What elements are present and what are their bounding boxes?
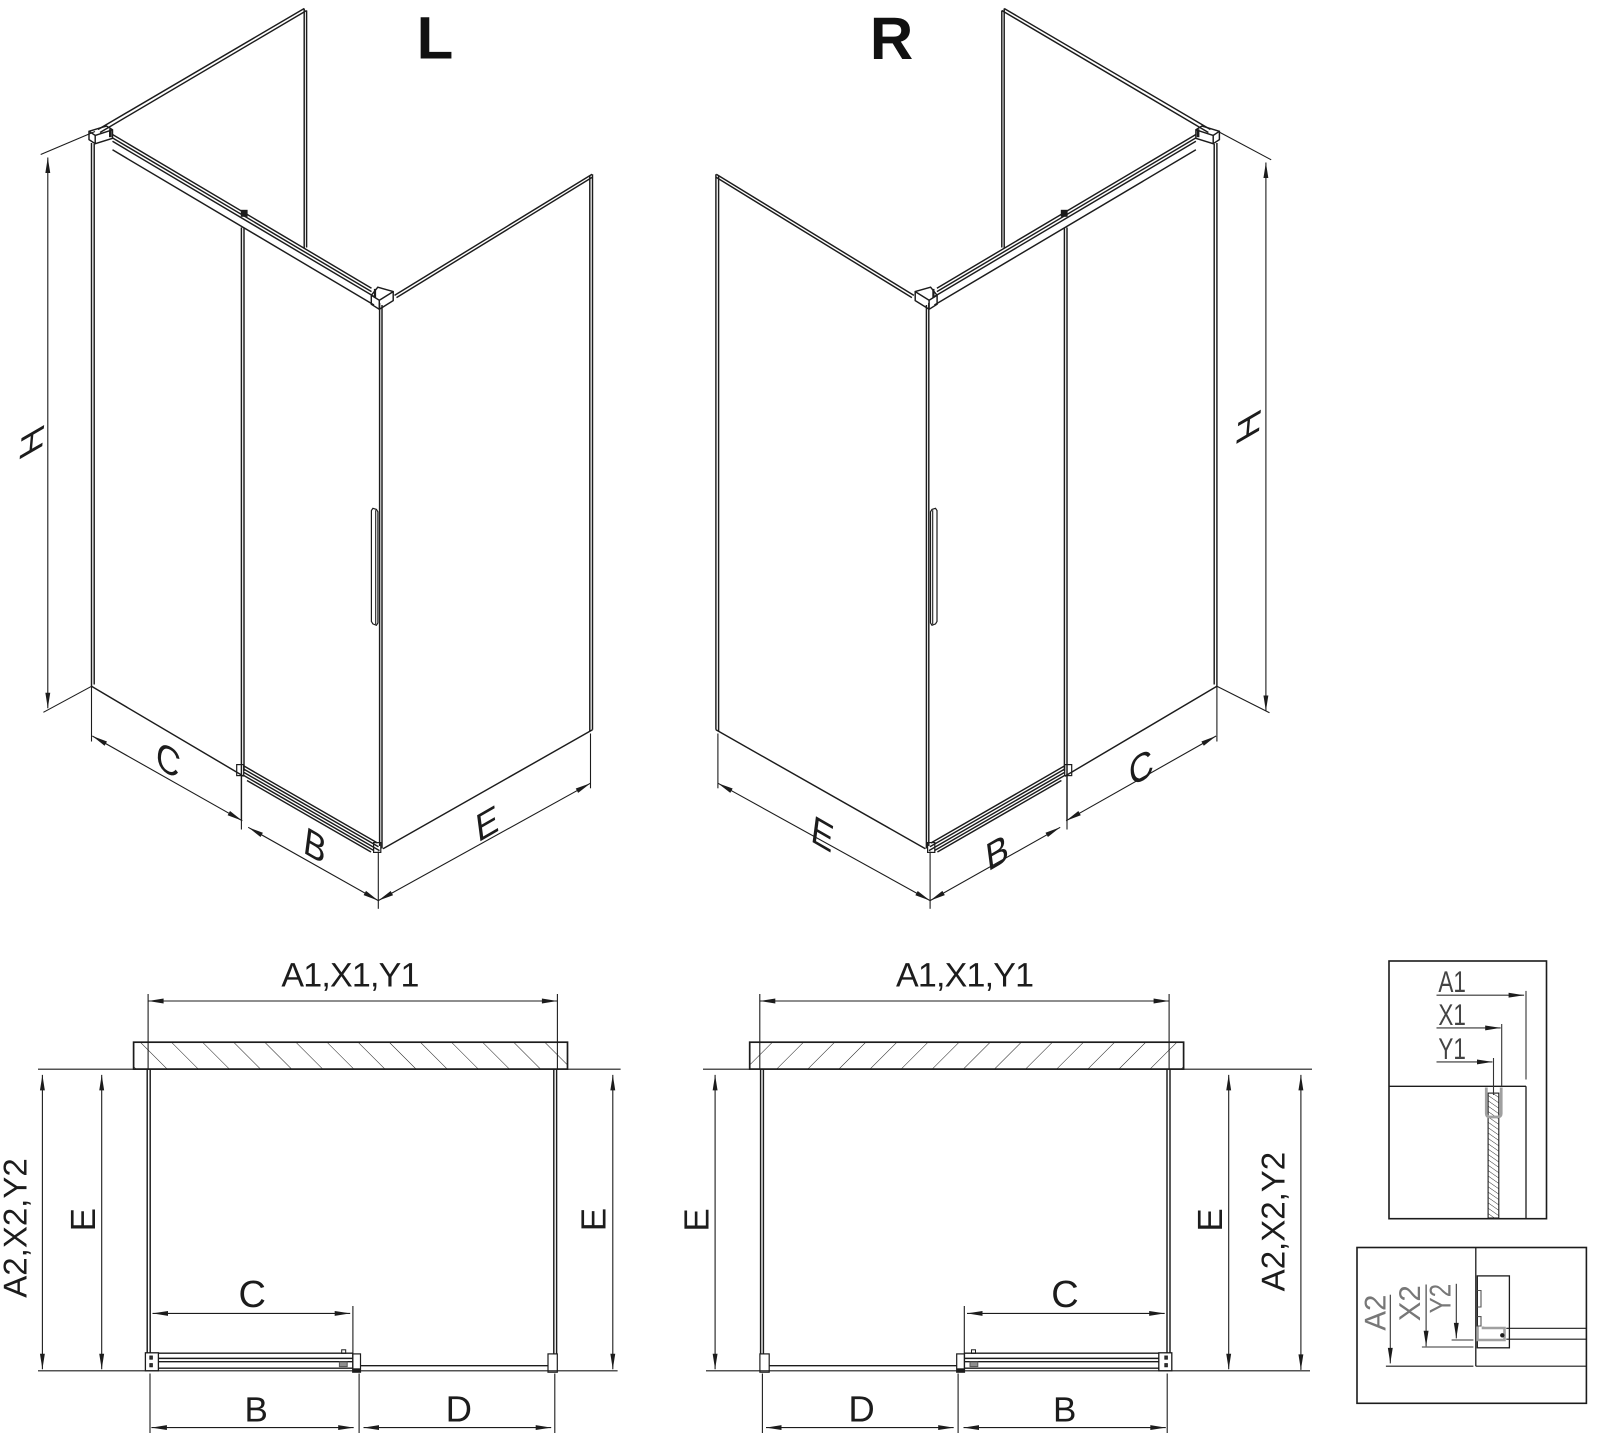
svg-text:E: E (575, 1208, 614, 1231)
svg-text:D: D (848, 1389, 874, 1430)
svg-text:X2: X2 (1394, 1285, 1427, 1321)
svg-text:B: B (1053, 1391, 1076, 1430)
svg-text:Y2: Y2 (1425, 1284, 1458, 1314)
svg-text:A1: A1 (1438, 966, 1466, 999)
svg-text:L: L (417, 5, 454, 72)
svg-text:A1,X1,Y1: A1,X1,Y1 (896, 957, 1033, 995)
svg-text:A2: A2 (1360, 1295, 1393, 1331)
svg-text:A2,X2,Y2: A2,X2,Y2 (0, 1158, 34, 1297)
svg-text:E: E (677, 1208, 716, 1231)
svg-text:A2,X2,Y2: A2,X2,Y2 (1254, 1152, 1291, 1291)
svg-text:D: D (446, 1389, 472, 1430)
svg-text:C: C (1051, 1274, 1078, 1316)
svg-text:A1,X1,Y1: A1,X1,Y1 (281, 957, 418, 995)
svg-text:C: C (238, 1274, 265, 1316)
svg-text:B: B (245, 1391, 268, 1430)
svg-text:Y1: Y1 (1438, 1033, 1466, 1066)
svg-text:X1: X1 (1438, 999, 1466, 1032)
svg-text:E: E (64, 1208, 103, 1231)
svg-text:R: R (870, 5, 913, 72)
svg-text:E: E (1191, 1208, 1230, 1231)
